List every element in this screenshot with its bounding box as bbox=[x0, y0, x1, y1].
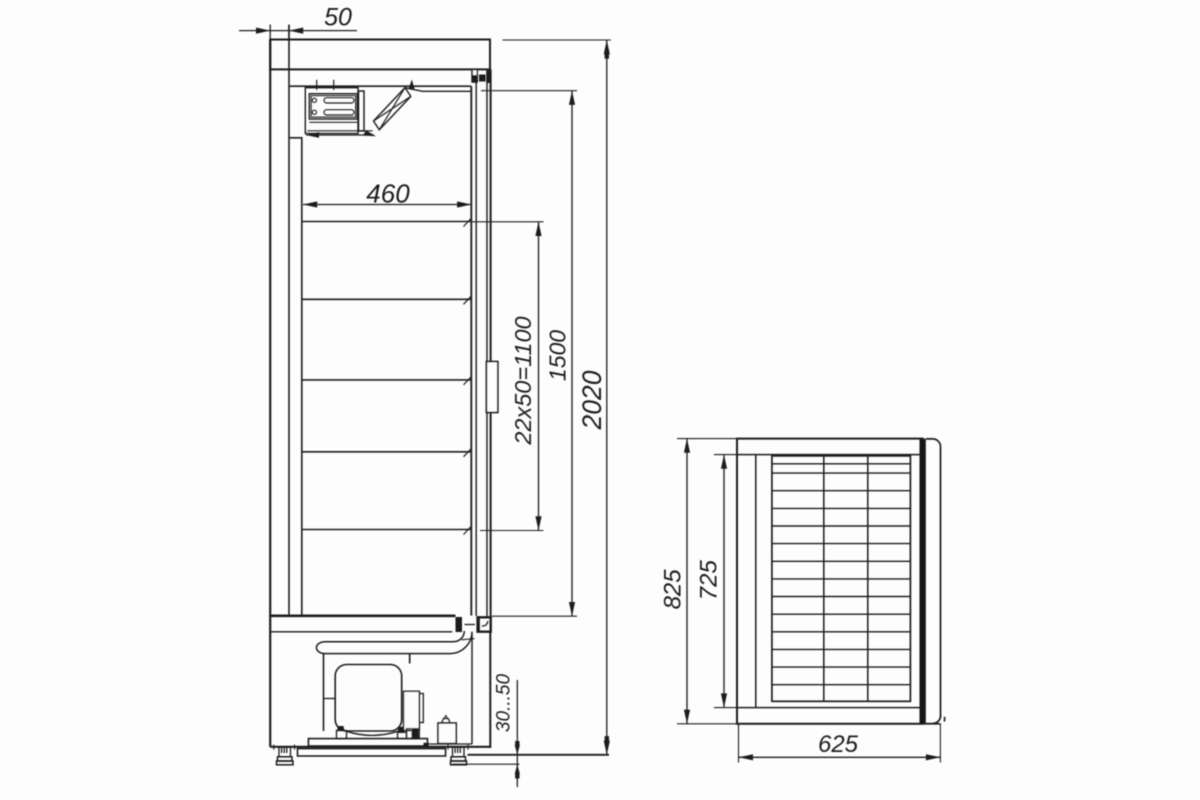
svg-text:50: 50 bbox=[324, 4, 352, 32]
svg-text:1500: 1500 bbox=[545, 330, 571, 381]
svg-text:22x50=1100: 22x50=1100 bbox=[510, 316, 536, 445]
svg-text:825: 825 bbox=[660, 569, 687, 610]
svg-text:460: 460 bbox=[366, 179, 410, 209]
svg-text:2020: 2020 bbox=[577, 370, 607, 430]
svg-text:725: 725 bbox=[696, 560, 723, 601]
svg-text:30...50: 30...50 bbox=[494, 674, 515, 733]
svg-text:625: 625 bbox=[818, 731, 859, 758]
